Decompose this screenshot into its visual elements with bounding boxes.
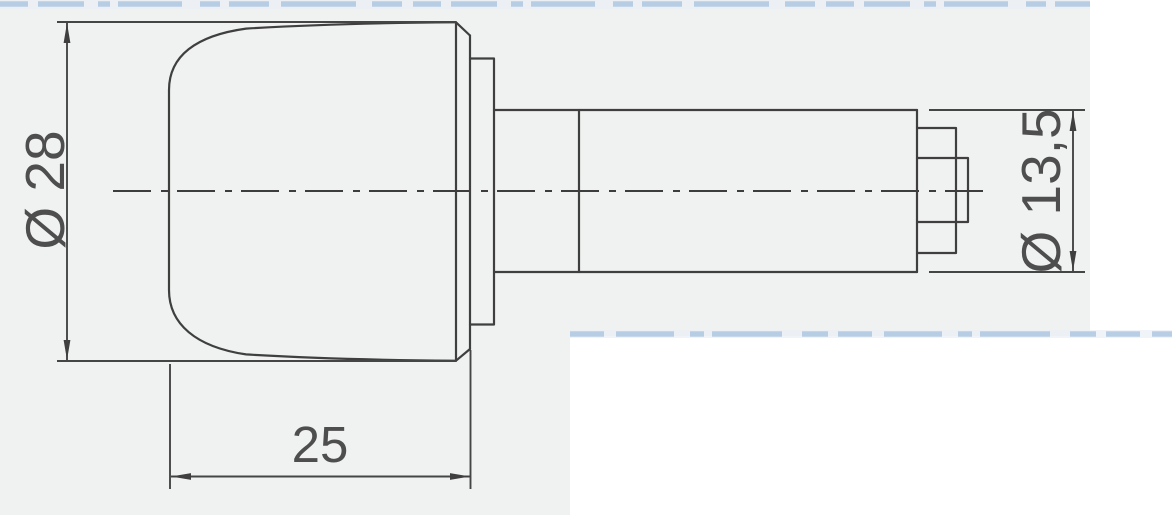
drawing-canvas: Ø 28 Ø 13,5 25 bbox=[0, 0, 1172, 515]
technical-drawing-page: Ø 28 Ø 13,5 25 bbox=[0, 0, 1172, 515]
shaft-diameter-label: Ø 13,5 bbox=[1010, 108, 1072, 273]
cap-diameter-label: Ø 28 bbox=[14, 130, 76, 249]
scan-artifact-top-strip bbox=[0, 0, 1090, 9]
scan-artifact-bottom-right-strip bbox=[570, 330, 1172, 338]
cap-length-label: 25 bbox=[292, 416, 349, 473]
